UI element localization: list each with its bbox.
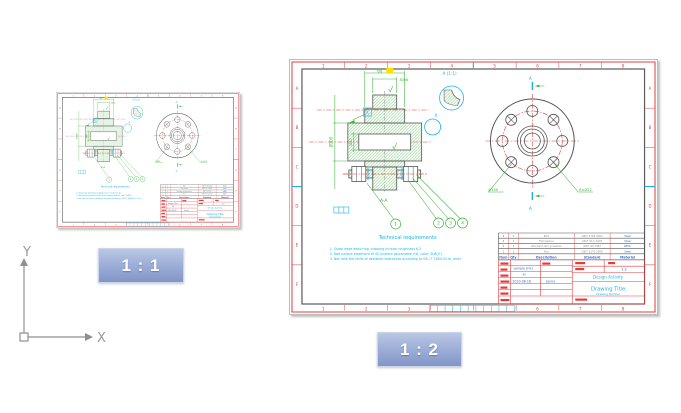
x-arrowhead [85, 333, 93, 341]
scale-badge-1to2: 1 : 2 [377, 332, 462, 367]
drawing-sheet-1to2 [289, 59, 658, 315]
ucs-axes-icon: Y X [10, 243, 120, 351]
y-axis-label: Y [22, 245, 31, 260]
slide-canvas: Ø100 Ø40 60 30h6 A [0, 0, 681, 413]
x-axis-label: X [97, 331, 106, 346]
drawing-sheet-1to1 [56, 92, 240, 228]
origin-square [20, 333, 28, 341]
